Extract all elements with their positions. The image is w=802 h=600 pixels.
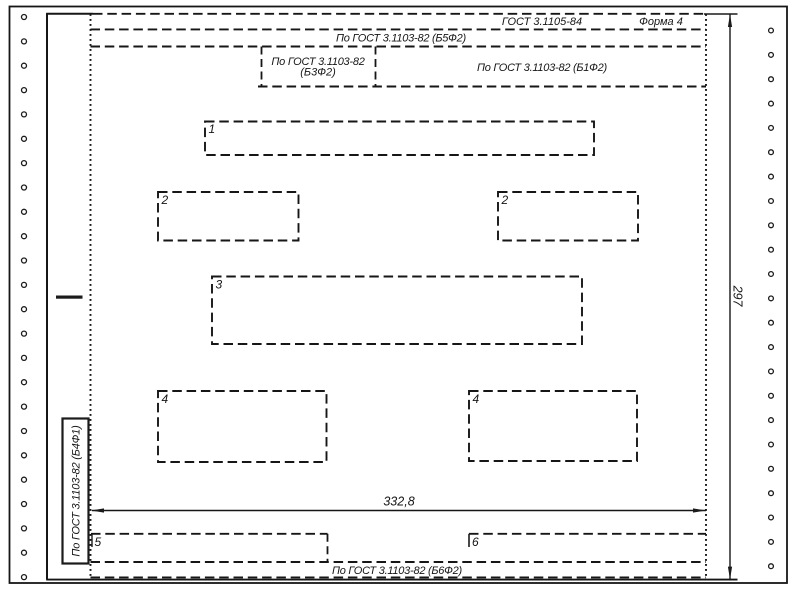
svg-text:6: 6 <box>472 535 479 549</box>
svg-text:3: 3 <box>216 278 223 292</box>
svg-text:ГОСТ 3.1105-84: ГОСТ 3.1105-84 <box>502 16 582 28</box>
svg-text:По ГОСТ 3.1103-82 (Б5Ф2): По ГОСТ 3.1103-82 (Б5Ф2) <box>336 33 467 45</box>
svg-text:297: 297 <box>731 285 745 308</box>
svg-text:1: 1 <box>209 122 216 136</box>
svg-text:Форма 4: Форма 4 <box>639 16 683 28</box>
svg-text:332,8: 332,8 <box>383 495 414 509</box>
svg-text:5: 5 <box>95 535 102 549</box>
svg-text:(Б3Ф2): (Б3Ф2) <box>300 67 336 79</box>
svg-text:По ГОСТ 3.1103-82 (Б6Ф2): По ГОСТ 3.1103-82 (Б6Ф2) <box>332 565 463 577</box>
svg-text:2: 2 <box>161 193 169 207</box>
svg-text:4: 4 <box>162 392 169 406</box>
svg-text:По ГОСТ 3.1103-82 (Б1Ф2): По ГОСТ 3.1103-82 (Б1Ф2) <box>477 62 608 74</box>
svg-text:2: 2 <box>501 193 509 207</box>
svg-text:По ГОСТ 3.1103-82 (Б4Ф1): По ГОСТ 3.1103-82 (Б4Ф1) <box>71 425 83 557</box>
svg-text:4: 4 <box>473 392 480 406</box>
